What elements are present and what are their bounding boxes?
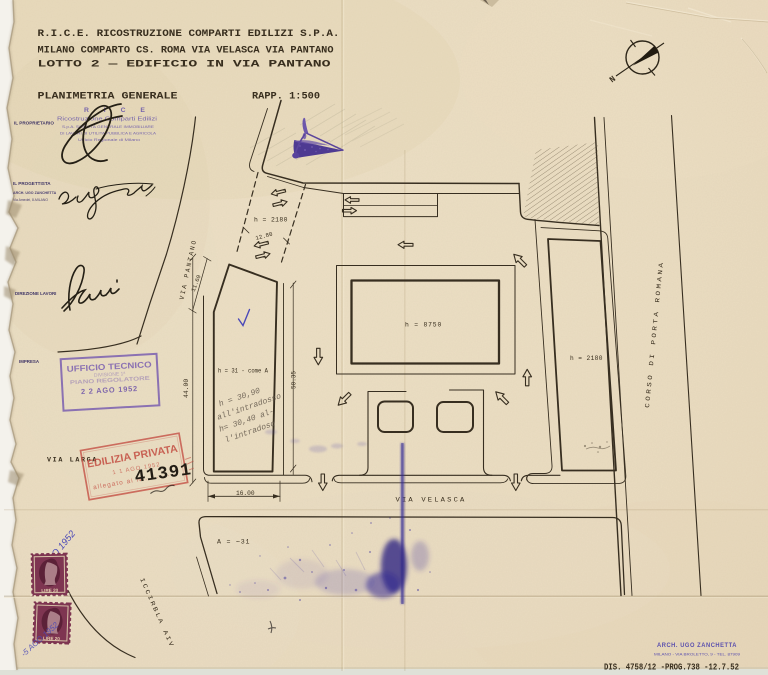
svg-text:RAPP. 1:500: RAPP. 1:500 [252,92,320,103]
svg-text:IMPRESA: IMPRESA [19,359,40,364]
svg-text:Ufficio Regionale di Milano: Ufficio Regionale di Milano [78,138,140,142]
svg-text:LOTTO 2 — EDIFICIO IN VIA PANT: LOTTO 2 — EDIFICIO IN VIA PANTANO [38,60,331,71]
svg-text:IL PROGETTISTA: IL PROGETTISTA [13,181,51,186]
svg-text:Via Amedei, 8-MILANO: Via Amedei, 8-MILANO [13,198,48,202]
svg-text:44.00: 44.00 [183,379,190,398]
svg-text:ARCH. UGO ZANCHETTA: ARCH. UGO ZANCHETTA [13,191,57,195]
svg-text:MILANO - VIA BROLETTO, 9 - TEL: MILANO - VIA BROLETTO, 9 - TEL. 87909 [654,652,741,657]
svg-text:VIA VELASCA: VIA VELASCA [396,497,467,504]
svg-text:ARCH. UGO ZANCHETTA: ARCH. UGO ZANCHETTA [657,642,737,649]
svg-text:16.00: 16.00 [236,490,255,497]
svg-text:IL PROPRIETARIO: IL PROPRIETARIO [14,121,54,126]
svg-text:h = 8750: h = 8750 [405,322,442,329]
svg-text:PLANIMETRIA GENERALE: PLANIMETRIA GENERALE [38,92,178,103]
svg-text:MILANO COMPARTO CS. ROMA VIA V: MILANO COMPARTO CS. ROMA VIA VELASCA VIA… [38,46,334,57]
svg-text:DIS. 4758/12 -PROG.738 -12.7.5: DIS. 4758/12 -PROG.738 -12.7.52 [604,663,739,673]
svg-text:h = 2180: h = 2180 [254,217,288,224]
svg-text:DIREZIONE LAVORI: DIREZIONE LAVORI [15,291,56,296]
svg-text:h = 31 - come A: h = 31 - come A [218,368,268,375]
svg-text:h = 2180: h = 2180 [570,355,603,362]
svg-text:R.I.C.E. RICOSTRUZIONE COMPART: R.I.C.E. RICOSTRUZIONE COMPARTI EDILIZI … [38,29,340,40]
svg-text:LIRE 20: LIRE 20 [41,588,58,593]
svg-text:A = ∼31: A = ∼31 [217,539,250,546]
svg-text:50.35: 50.35 [291,371,298,389]
